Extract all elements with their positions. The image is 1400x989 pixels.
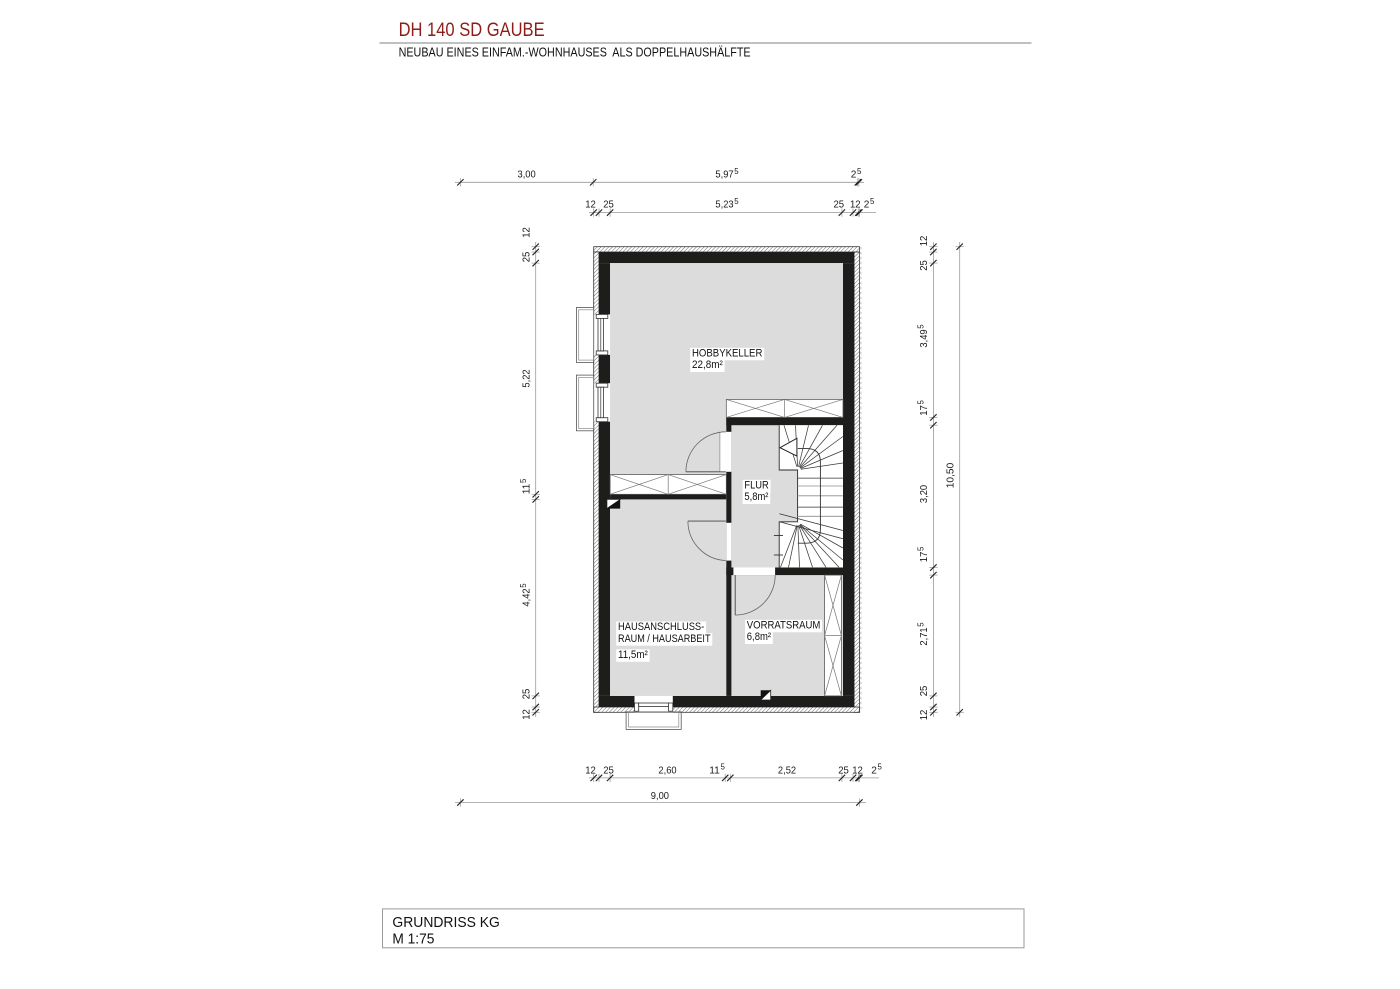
svg-text:2: 2 [864,200,870,211]
svg-text:HAUSANSCHLUSS-: HAUSANSCHLUSS- [618,621,705,633]
svg-text:5: 5 [519,583,528,588]
svg-text:11,5m²: 11,5m² [618,649,648,661]
svg-text:12: 12 [852,765,863,776]
svg-text:25: 25 [603,765,614,776]
svg-text:5,22: 5,22 [522,369,533,387]
svg-text:3,20: 3,20 [919,485,930,503]
svg-text:M 1:75: M 1:75 [392,932,434,948]
svg-text:12: 12 [919,710,930,721]
svg-text:10,50: 10,50 [946,463,957,489]
svg-text:5: 5 [734,197,739,206]
svg-text:2,71: 2,71 [919,627,930,645]
svg-text:5: 5 [917,622,926,627]
svg-text:12: 12 [585,765,596,776]
svg-text:25: 25 [522,252,533,263]
svg-text:25: 25 [838,765,849,776]
svg-text:NEUBAU EINES EINFAM.-WOHNHAUSE: NEUBAU EINES EINFAM.-WOHNHAUSES ALS DOPP… [399,45,751,60]
svg-text:2: 2 [871,765,877,776]
svg-text:HOBBYKELLER: HOBBYKELLER [692,348,763,360]
svg-text:12: 12 [522,709,533,720]
svg-text:5: 5 [917,324,926,329]
svg-text:25: 25 [919,686,930,697]
svg-text:12: 12 [522,227,533,238]
svg-text:2,52: 2,52 [778,765,796,776]
svg-text:5: 5 [721,763,726,772]
svg-text:12: 12 [919,236,930,247]
svg-text:RAUM / HAUSARBEIT: RAUM / HAUSARBEIT [618,633,711,645]
svg-text:25: 25 [834,200,845,211]
svg-text:12: 12 [585,200,596,211]
svg-text:5,8m²: 5,8m² [744,491,768,503]
svg-text:2,60: 2,60 [658,765,676,776]
svg-text:4,42: 4,42 [522,588,533,606]
svg-text:25: 25 [919,260,930,271]
svg-text:3,49: 3,49 [919,329,930,347]
svg-text:GRUNDRISS KG: GRUNDRISS KG [392,915,500,931]
svg-text:VORRATSRAUM: VORRATSRAUM [747,620,821,632]
svg-text:5: 5 [878,763,883,772]
svg-text:5,97: 5,97 [715,170,733,181]
svg-text:3,00: 3,00 [518,170,536,181]
svg-text:11: 11 [709,765,720,776]
svg-text:5: 5 [870,197,875,206]
svg-text:5: 5 [917,399,926,404]
svg-text:22,8m²: 22,8m² [692,359,723,371]
svg-text:5,23: 5,23 [715,200,733,211]
svg-text:25: 25 [603,200,614,211]
svg-text:DH 140 SD GAUBE: DH 140 SD GAUBE [399,20,545,41]
svg-text:FLUR: FLUR [744,480,769,492]
svg-text:17: 17 [919,405,930,416]
svg-text:2: 2 [851,170,857,181]
svg-text:17: 17 [919,552,930,563]
svg-text:5: 5 [857,167,862,176]
svg-text:5: 5 [519,478,528,483]
svg-text:5: 5 [917,546,926,551]
svg-text:11: 11 [522,483,533,494]
svg-text:12: 12 [850,200,861,211]
svg-text:9,00: 9,00 [651,791,669,802]
svg-text:6,8m²: 6,8m² [747,631,772,643]
svg-text:5: 5 [734,167,739,176]
svg-text:25: 25 [522,689,533,700]
